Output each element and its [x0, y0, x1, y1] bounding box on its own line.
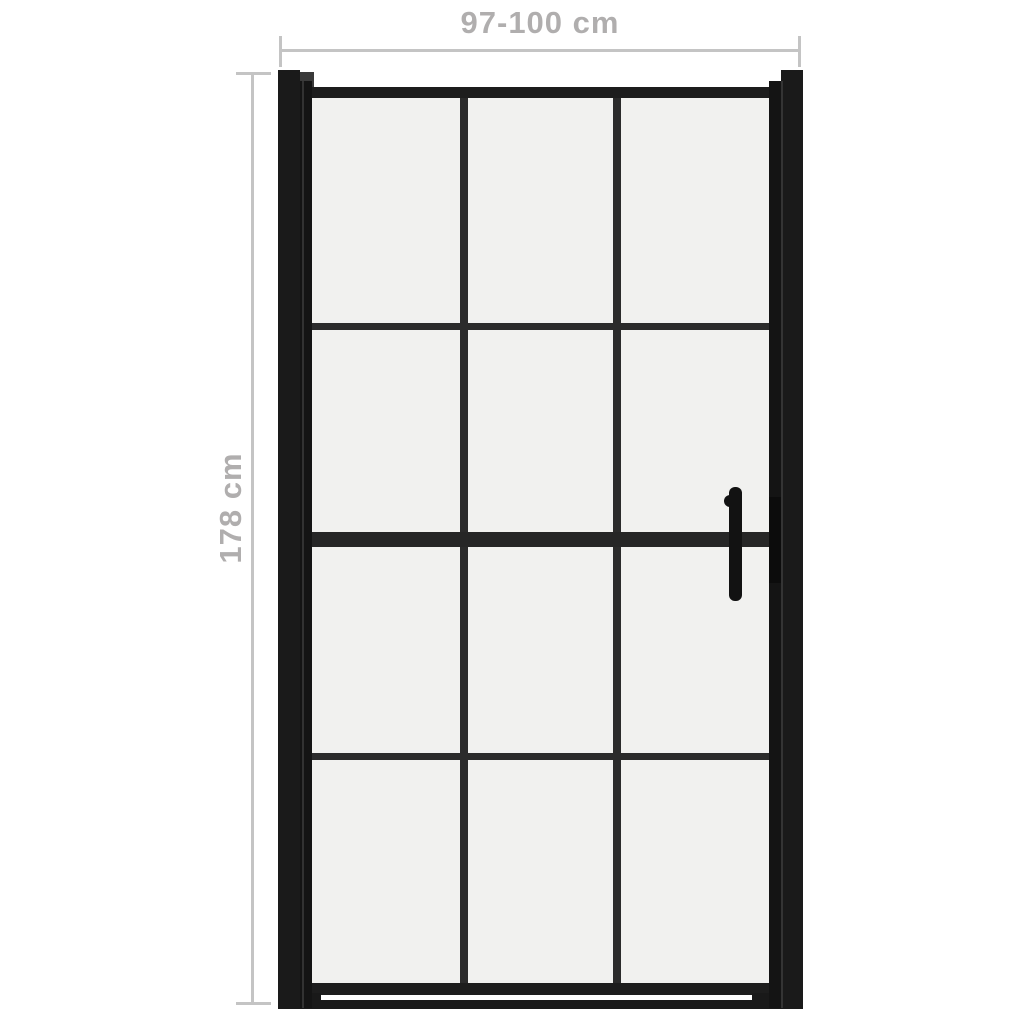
height-dimension-tick-top: [236, 72, 271, 75]
width-dimension-line: [280, 49, 801, 52]
right-stile-highlight: [781, 81, 783, 1008]
grid-line-horizontal-3: [308, 753, 772, 760]
mid-rail: [308, 532, 772, 547]
bottom-rail: [306, 983, 772, 995]
width-dimension-tick-right: [798, 36, 801, 67]
right-wall-profile: [781, 70, 803, 1009]
height-dimension-tick-bottom: [236, 1002, 271, 1005]
width-dimension-label: 97-100 cm: [280, 2, 800, 44]
left-stile-highlight: [302, 81, 304, 1008]
top-rail: [306, 87, 772, 98]
door-handle: [729, 487, 742, 601]
width-dimension-tick-left: [279, 36, 282, 67]
height-dimension-line: [251, 73, 254, 1004]
grid-line-horizontal-1: [308, 323, 772, 330]
product-diagram: 97-100 cm 178 cm: [0, 0, 1024, 1024]
bottom-threshold: [299, 1000, 784, 1009]
height-dimension-text: 178 cm: [213, 452, 249, 563]
glass-panel: [308, 97, 772, 984]
left-wall-profile: [278, 70, 300, 1009]
left-door-stile: [299, 81, 312, 1008]
